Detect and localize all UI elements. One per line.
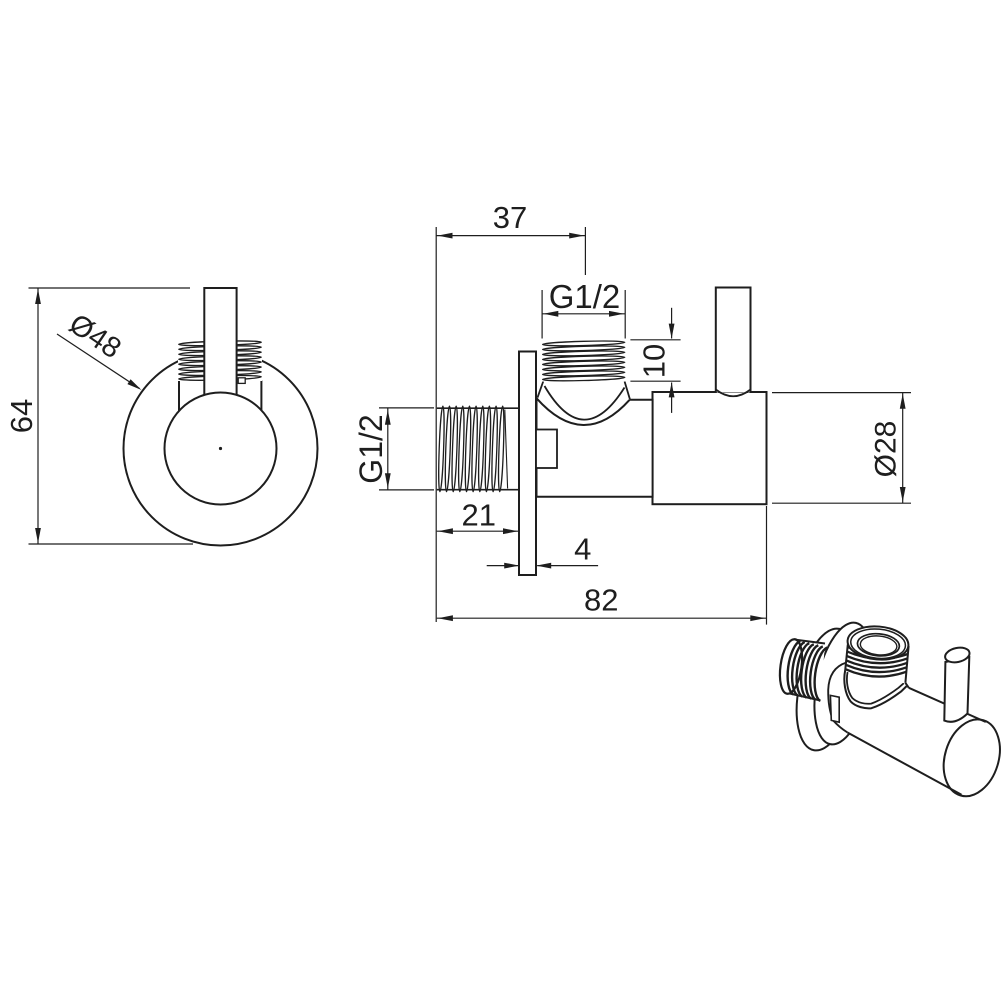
svg-text:Ø28: Ø28: [870, 421, 903, 478]
svg-text:G1/2: G1/2: [353, 414, 389, 483]
svg-text:37: 37: [493, 200, 527, 235]
svg-text:4: 4: [574, 532, 591, 567]
svg-text:64: 64: [4, 399, 39, 433]
svg-text:G1/2: G1/2: [549, 278, 621, 315]
svg-text:82: 82: [584, 583, 618, 618]
svg-text:21: 21: [461, 498, 495, 533]
svg-text:10: 10: [637, 344, 672, 378]
